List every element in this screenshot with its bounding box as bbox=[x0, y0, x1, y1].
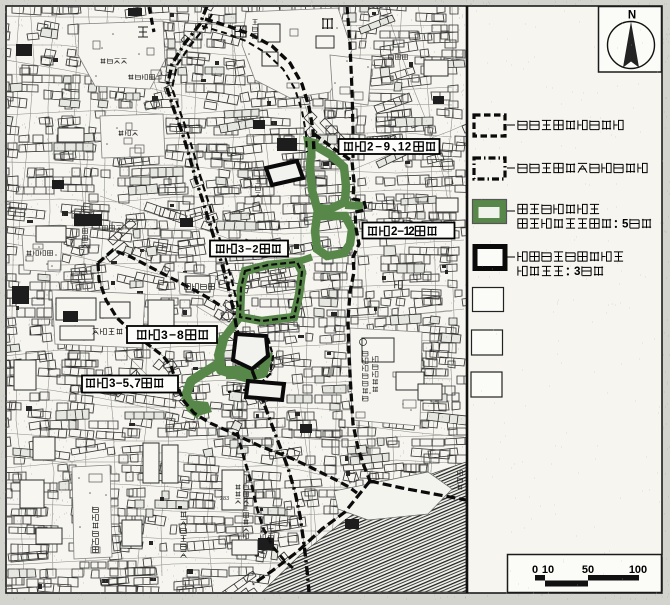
svg-text:9: 9 bbox=[384, 141, 391, 154]
svg-text:−: − bbox=[245, 244, 251, 256]
svg-text:8: 8 bbox=[177, 328, 184, 342]
svg-text:−: − bbox=[375, 141, 382, 154]
svg-text:10: 10 bbox=[542, 564, 554, 576]
svg-text:3: 3 bbox=[574, 265, 581, 278]
svg-text:2: 2 bbox=[252, 244, 258, 256]
svg-text:7: 7 bbox=[134, 377, 140, 390]
svg-text:283: 283 bbox=[220, 496, 229, 502]
svg-text:100: 100 bbox=[629, 564, 647, 576]
svg-text:3: 3 bbox=[161, 328, 168, 342]
svg-text:2: 2 bbox=[367, 141, 373, 154]
svg-text:50: 50 bbox=[582, 564, 594, 576]
svg-text:3: 3 bbox=[238, 244, 244, 256]
svg-text:2: 2 bbox=[405, 141, 411, 154]
svg-text:2: 2 bbox=[408, 225, 414, 238]
svg-text:−: − bbox=[169, 328, 176, 342]
svg-text:N: N bbox=[628, 10, 636, 22]
svg-text:0: 0 bbox=[532, 564, 538, 576]
svg-text:5: 5 bbox=[622, 218, 629, 231]
